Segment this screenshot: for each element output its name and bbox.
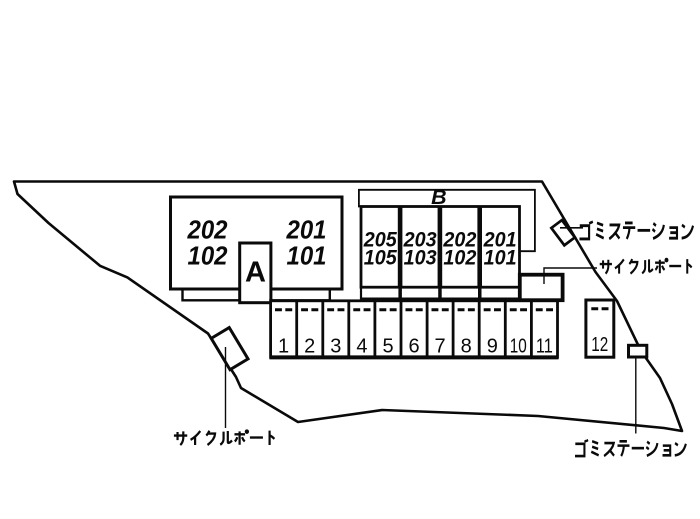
svg-text:7: 7 <box>435 336 446 358</box>
svg-text:102: 102 <box>188 240 228 270</box>
svg-text:102: 102 <box>443 247 476 270</box>
svg-text:5: 5 <box>382 336 393 358</box>
svg-text:101: 101 <box>287 240 327 270</box>
svg-text:4: 4 <box>356 336 367 358</box>
svg-text:6: 6 <box>408 336 419 358</box>
svg-text:3: 3 <box>330 336 341 358</box>
svg-text:11: 11 <box>536 336 553 358</box>
svg-text:105: 105 <box>364 247 397 270</box>
svg-text:A: A <box>245 257 266 289</box>
svg-text:12: 12 <box>591 334 608 356</box>
svg-text:101: 101 <box>484 247 517 270</box>
svg-text:1: 1 <box>278 336 289 358</box>
svg-text:9: 9 <box>487 336 498 358</box>
svg-text:103: 103 <box>404 247 437 270</box>
svg-text:10: 10 <box>510 336 527 358</box>
svg-text:8: 8 <box>461 336 472 358</box>
svg-text:2: 2 <box>304 336 315 358</box>
